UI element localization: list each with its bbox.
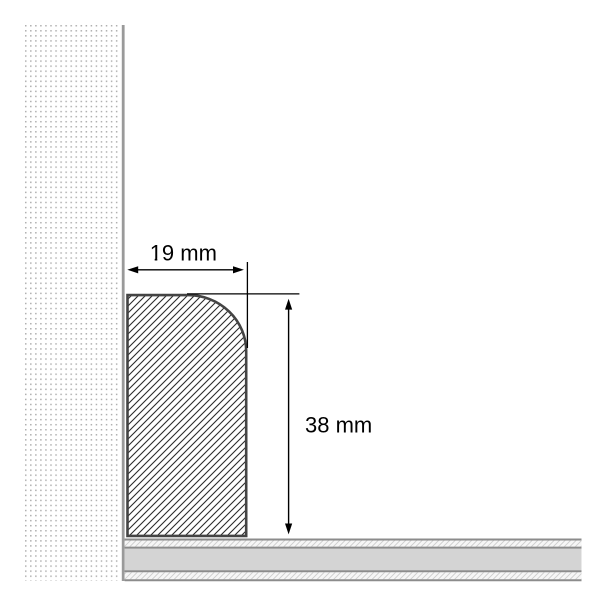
svg-text:38 mm: 38 mm [305, 413, 372, 438]
svg-text:19 mm: 19 mm [150, 241, 217, 266]
